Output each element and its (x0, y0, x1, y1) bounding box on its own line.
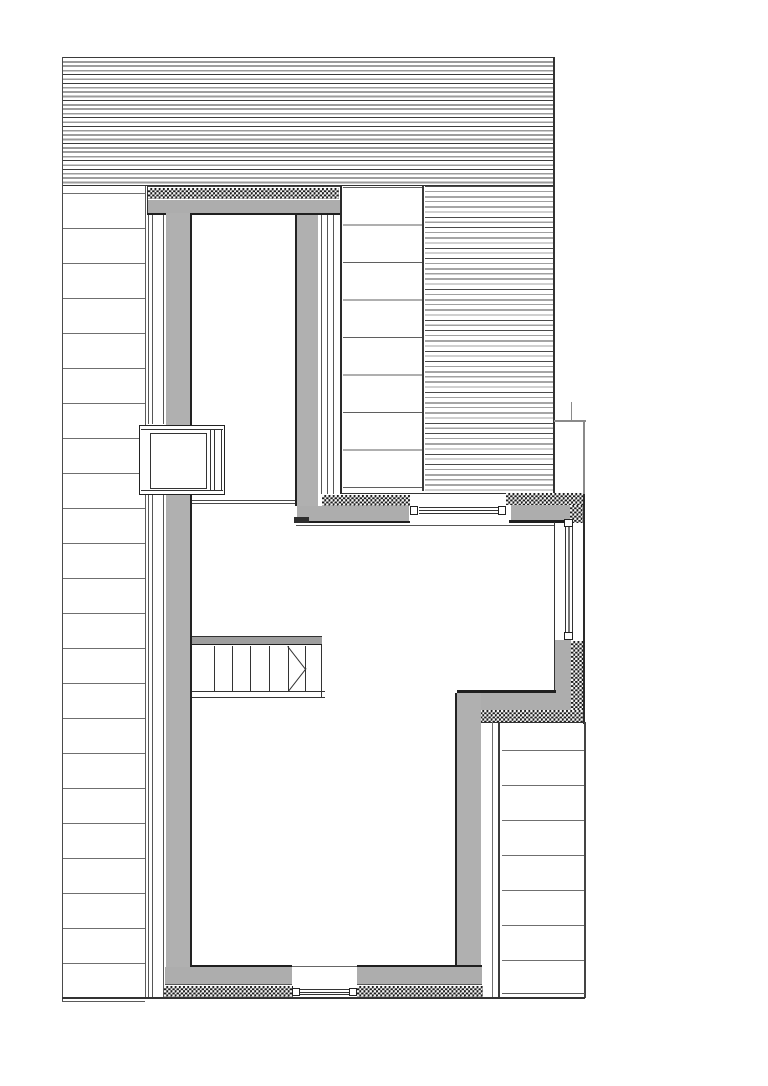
east-window-jamb-bottom (564, 632, 574, 641)
east-wall-gray (457, 693, 480, 967)
west-window-box-top-line (141, 429, 223, 430)
south-band-corner-block (294, 517, 309, 523)
east-outer-face-upper (583, 421, 585, 495)
dormer-head-gray (148, 200, 341, 214)
east-wall-sheathing-line-2 (498, 722, 500, 997)
west-window-box-bottom-line (141, 490, 223, 491)
stair-nosing-bottom-line (192, 697, 325, 698)
east-window-jamb-top (564, 519, 574, 528)
east-window-glazing-1 (565, 527, 566, 632)
east-window-glazing-3 (572, 527, 573, 632)
south-outer-base-line (62, 997, 585, 999)
right-siding-bottom-line (502, 993, 585, 994)
clerestory-sill-line (296, 525, 555, 526)
west-window-inner-pane (150, 433, 207, 489)
stair-header-gray (192, 637, 322, 644)
south-band-insulation-east (506, 493, 583, 506)
roof-ridge-edge-line (553, 57, 555, 494)
stair-nosing-top-line (192, 691, 325, 692)
south-wall-gray-west (165, 967, 292, 984)
west-wall-sheathing-line-3a (163, 215, 164, 424)
left-siding-right-edge-line (145, 186, 146, 998)
west-window-frame-line-3 (221, 429, 222, 490)
south-door-sill-line-2 (300, 992, 350, 993)
east-outline-top-line (554, 420, 586, 422)
south-band-gray-west (297, 506, 409, 521)
clerestory-glazing-2 (419, 510, 499, 511)
south-wall-insulation-east (357, 986, 483, 997)
south-band-insulation-west (322, 495, 410, 506)
south-wall-gray-east (357, 967, 482, 984)
right-siding-hatch (502, 750, 585, 965)
clerestory-glazing-1 (419, 507, 499, 508)
clerestory-jamb-west (410, 506, 419, 516)
dormer-east-wall-outer-edge (340, 186, 342, 494)
west-wall-inner-face-upper (190, 213, 192, 425)
south-band-east-bottom-line (509, 520, 571, 522)
se-wall-insulation-horizontal (480, 710, 583, 722)
south-door-sill-line-1 (300, 989, 350, 990)
south-door-head-line (292, 966, 357, 967)
east-outline-stub-line (571, 402, 572, 421)
se-wall-outer-bottom-line (480, 722, 585, 723)
stair-break-line-upper (287, 646, 306, 669)
dormer-head-insulation (148, 188, 339, 199)
west-window-frame-line-1 (210, 429, 211, 490)
south-band-west-bottom-line (294, 521, 410, 523)
stair-riser-2 (232, 646, 233, 691)
stair-riser-5 (288, 646, 289, 691)
roof-hatch-band (62, 57, 554, 186)
clerestory-glazing-3 (419, 513, 499, 514)
west-window-frame-line-2 (214, 429, 215, 490)
ceiling-break-line-1 (192, 500, 295, 501)
west-wall-sheathing-line-1a (148, 215, 149, 424)
south-band-gray-east (511, 505, 570, 520)
left-siding-hatch (63, 193, 145, 999)
west-wall-sheathing-line-1b (148, 495, 149, 997)
south-door-jamb-west (292, 988, 300, 997)
right-siding-right-edge-line (584, 722, 585, 998)
stair-riser-1 (214, 646, 215, 691)
left-siding-bottom-line (62, 1001, 145, 1002)
stair-header-bottom-line (192, 644, 322, 646)
west-wall-gray-lower (166, 494, 191, 967)
west-wall-gray-upper (166, 213, 191, 425)
roof-section-lower-hatch (425, 186, 553, 494)
ceiling-break-line-2 (192, 503, 295, 504)
south-door-sill-line-3 (300, 994, 350, 995)
dormer-east-wall-sheathing-1 (321, 215, 322, 494)
west-wall-inner-face-lower (190, 494, 192, 967)
clerestory-jamb-east (498, 506, 507, 516)
east-window-glazing-2 (568, 527, 569, 632)
south-wall-insulation-west (164, 986, 293, 997)
east-wall-sheathing-line-1 (492, 722, 493, 997)
dormer-east-wall-gray (297, 215, 318, 506)
stair-riser-4 (269, 646, 270, 691)
floor-plan-canvas (0, 0, 768, 1086)
west-wall-sheathing-line-2a (152, 215, 153, 424)
roof-section-upper-hatch (343, 187, 422, 488)
dormer-east-wall-sheathing-3 (333, 215, 334, 494)
stair-riser-3 (250, 646, 251, 691)
west-wall-sheathing-line-2b (152, 495, 153, 997)
dormer-east-wall-sheathing-2 (327, 215, 328, 494)
south-door-jamb-east (349, 988, 357, 997)
west-wall-sheathing-line-3b (163, 495, 164, 997)
east-outer-face (583, 494, 585, 724)
